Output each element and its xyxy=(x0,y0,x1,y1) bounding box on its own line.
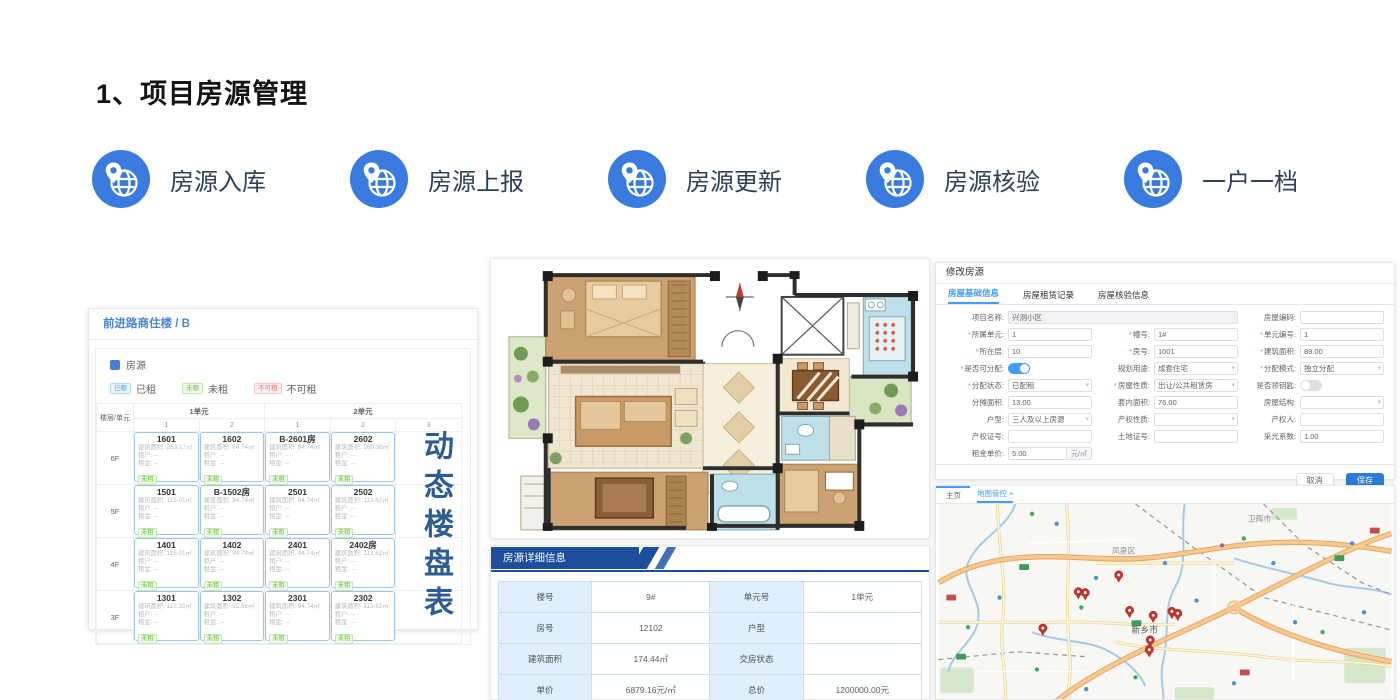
chevron-down-icon: ▾ xyxy=(1231,416,1235,423)
room-rent: 租金: -- xyxy=(138,619,195,627)
room-number: 1302 xyxy=(204,593,261,603)
detail-label: 房号 xyxy=(499,613,592,644)
field-label: 采光系数: xyxy=(1238,431,1300,442)
form-field: 租金单价:5.00元/㎡ xyxy=(946,447,1092,460)
required-asterisk: * xyxy=(1129,330,1132,339)
room-cell: 2602建筑面积: 260.36㎡租户: --租金: --未租 xyxy=(330,432,396,485)
form-field: 房屋结构:▾ xyxy=(1238,396,1384,409)
text-input[interactable] xyxy=(1300,413,1384,426)
room-status-badge: 未租 xyxy=(269,581,288,591)
room-cell: 1602建筑面积: 94.74㎡租户: --租金: --未租 xyxy=(199,432,265,485)
text-input[interactable] xyxy=(1154,430,1238,443)
room-rent: 租金: -- xyxy=(269,513,326,521)
chevron-down-icon: ▾ xyxy=(1085,382,1089,389)
room-card[interactable]: 1301建筑面积: 113.35㎡租户: --租金: --未租 xyxy=(134,591,199,641)
form-field: 产权人: xyxy=(1238,413,1384,426)
room-number: 2302 xyxy=(335,593,392,603)
field-label: 租金单价: xyxy=(946,448,1008,459)
room-area: 建筑面积: 113.62㎡ xyxy=(335,550,392,558)
field-label: 规划用途: xyxy=(1092,363,1154,374)
room-area: 建筑面积: 94.74㎡ xyxy=(204,550,261,558)
form-field: 套内面积:76.00 xyxy=(1092,396,1238,409)
form-field: 产权性质:▾ xyxy=(1092,413,1238,426)
room-number: 2301 xyxy=(269,593,326,603)
unit-group-header: 1单元 xyxy=(134,404,265,419)
feature-row: 房源入库房源上报房源更新房源核验一户一档 xyxy=(92,150,1382,208)
room-status-badge: 未租 xyxy=(138,528,157,538)
select-input[interactable]: ▾ xyxy=(1300,396,1384,409)
floor-label: 6F xyxy=(97,432,134,485)
form-tab-2[interactable]: 房屋租赁记录 xyxy=(1023,289,1074,304)
room-cell: 1301建筑面积: 113.35㎡租户: --租金: --未租 xyxy=(134,591,200,644)
form-field: *建筑面积:89.00 xyxy=(1238,345,1384,358)
field-label: *房号: xyxy=(1092,346,1154,357)
room-number: 2502 xyxy=(335,487,392,497)
legend-status-rented: 已租已租 xyxy=(110,381,156,396)
text-input[interactable]: 1# xyxy=(1154,328,1238,341)
room-card[interactable]: 2501建筑面积: 94.74㎡租户: --租金: --未租 xyxy=(265,485,330,535)
field-label: *所属单元: xyxy=(946,329,1008,340)
room-card[interactable]: 2401建筑面积: 94.74㎡租户: --租金: --未租 xyxy=(265,538,330,588)
room-area: 建筑面积: 94.74㎡ xyxy=(269,603,326,611)
edit-form: 项目名称:兴测小区房屋编码:*所属单元:1*幢号:1#*单元编号:1*所在层:1… xyxy=(936,305,1394,460)
room-number: B-2601房 xyxy=(269,434,326,444)
room-status-badge: 未租 xyxy=(204,528,223,538)
room-number: 2402房 xyxy=(335,540,392,550)
text-input[interactable]: 5.00 xyxy=(1008,447,1067,460)
toggle-knob xyxy=(1020,364,1029,373)
form-field: *所在层:10 xyxy=(946,345,1092,358)
required-asterisk: * xyxy=(960,364,963,373)
select-input[interactable]: 独立分配▾ xyxy=(1300,362,1384,375)
chevron-down-icon: ▾ xyxy=(1085,416,1089,423)
map-tab-1[interactable]: 主页 xyxy=(946,490,961,503)
detail-label: 交房状态 xyxy=(710,644,803,675)
detail-value: 174.44㎡ xyxy=(592,644,710,675)
feature-item-5: 一户一档 xyxy=(1124,150,1382,208)
legend-status-unavailable: 不可租不可租 xyxy=(254,381,317,396)
form-field: 房屋编码: xyxy=(1238,311,1384,324)
room-area: 建筑面积: 113.35㎡ xyxy=(138,603,195,611)
unit-group-header: 2单元 xyxy=(265,404,462,419)
room-card[interactable]: 2301建筑面积: 94.74㎡租户: --租金: --未租 xyxy=(265,591,330,641)
text-input[interactable]: 兴测小区 xyxy=(1008,311,1238,324)
form-field: *是否可分配: xyxy=(946,362,1092,375)
room-status-badge: 未租 xyxy=(204,475,223,485)
room-tenant: 租户: -- xyxy=(269,505,326,513)
room-card[interactable]: 2302建筑面积: 113.62㎡租户: --租金: --未租 xyxy=(331,591,396,641)
room-number: B-1502房 xyxy=(204,487,261,497)
room-tenant: 租户: -- xyxy=(204,611,261,619)
form-tab-3[interactable]: 房屋核验信息 xyxy=(1098,289,1149,304)
room-number: 2602 xyxy=(335,434,392,444)
required-asterisk: * xyxy=(1114,381,1117,390)
form-row-7: 户型:三人及以上房源▾产权性质:▾产权人: xyxy=(946,413,1384,426)
select-input[interactable]: 已配租▾ xyxy=(1008,379,1092,392)
globe-pin-icon xyxy=(350,150,408,208)
detail-row: 楼号9#单元号1单元 xyxy=(499,582,922,613)
form-field: 产权证号: xyxy=(946,430,1092,443)
legend-badge-vacant: 未租 xyxy=(182,383,203,394)
toggle-switch[interactable] xyxy=(1008,363,1030,374)
room-tenant: 租户: -- xyxy=(138,505,195,513)
feature-item-4: 房源核验 xyxy=(866,150,1124,208)
room-rent: 租金: -- xyxy=(269,619,326,627)
globe-pin-icon xyxy=(866,150,924,208)
text-input[interactable]: 1 xyxy=(1300,328,1384,341)
room-area: 建筑面积: 113.62㎡ xyxy=(335,497,392,505)
room-number: 1501 xyxy=(138,487,195,497)
detail-value: 9# xyxy=(592,582,710,613)
detail-value xyxy=(803,644,921,675)
field-label: 产权证号: xyxy=(946,431,1008,442)
feature-item-3: 房源更新 xyxy=(608,150,866,208)
detail-value: 1200000.00元 xyxy=(803,675,921,700)
building-table-row: 4F1401建筑面积: 115.01㎡租户: --租金: --未租1402建筑面… xyxy=(97,538,462,591)
form-field: *所属单元:1 xyxy=(946,328,1092,341)
room-tenant: 租户: -- xyxy=(335,452,392,460)
field-label: 房屋编码: xyxy=(1238,312,1300,323)
legend-label-rented: 已租 xyxy=(136,381,156,396)
form-field: 采光系数:1.00 xyxy=(1238,430,1384,443)
room-number: 1401 xyxy=(138,540,195,550)
unit-column-header: 1 xyxy=(134,419,200,432)
room-rent: 租金: -- xyxy=(335,619,392,627)
toggle-knob xyxy=(1301,381,1310,390)
map-tabs: 主页地图管控 × xyxy=(936,486,1394,504)
form-row-1: 项目名称:兴测小区房屋编码: xyxy=(946,311,1384,324)
room-rent: 租金: -- xyxy=(204,566,261,574)
field-label: *房屋性质: xyxy=(1092,380,1154,391)
room-cell: 1302建筑面积: 92.56㎡租户: --租金: --未租 xyxy=(199,591,265,644)
room-area: 建筑面积: 113.62㎡ xyxy=(335,603,392,611)
room-card[interactable]: 2502建筑面积: 113.62㎡租户: --租金: --未租 xyxy=(331,485,396,535)
room-cell: 2301建筑面积: 94.74㎡租户: --租金: --未租 xyxy=(265,591,331,644)
feature-label: 房源入库 xyxy=(170,162,266,197)
room-number: 1301 xyxy=(138,593,195,603)
room-tenant: 租户: -- xyxy=(269,558,326,566)
room-card[interactable]: 1402建筑面积: 94.74㎡租户: --租金: --未租 xyxy=(200,538,265,588)
room-tenant: 租户: -- xyxy=(138,452,195,460)
house-detail-panel: 房源详细信息 楼号9#单元号1单元房号12102户型建筑面积174.44㎡交房状… xyxy=(490,545,930,700)
chevron-down-icon: ▾ xyxy=(1377,365,1381,372)
room-rent: 租金: -- xyxy=(138,513,195,521)
room-cell: 2502建筑面积: 113.62㎡租户: --租金: --未租 xyxy=(330,485,396,538)
room-cell: 2402房建筑面积: 113.62㎡租户: --租金: --未租 xyxy=(330,538,396,591)
select-input[interactable]: 出让/公共租赁房▾ xyxy=(1154,379,1238,392)
text-input[interactable]: 1 xyxy=(1008,328,1092,341)
chevron-down-icon: ▾ xyxy=(1231,382,1235,389)
room-cell: 1402建筑面积: 94.74㎡租户: --租金: --未租 xyxy=(199,538,265,591)
form-row-4: *是否可分配:规划用途:成套住宅▾*分配模式:独立分配▾ xyxy=(946,362,1384,375)
legend-label-unavailable: 不可租 xyxy=(287,381,317,396)
room-tenant: 租户: -- xyxy=(335,505,392,513)
map-tab-2[interactable]: 地图管控 × xyxy=(977,488,1013,503)
room-rent: 租金: -- xyxy=(335,513,392,521)
room-number: 1402 xyxy=(204,540,261,550)
unit-column-header: 2 xyxy=(199,419,265,432)
map-panel: 主页地图管控 × xyxy=(935,485,1395,700)
room-status-badge: 未租 xyxy=(269,475,288,485)
field-label: *是否可分配: xyxy=(946,363,1008,374)
room-status-badge: 未租 xyxy=(138,581,157,591)
floor-plan-card xyxy=(490,258,930,539)
field-label: *分配模式: xyxy=(1238,363,1300,374)
room-status-badge: 未租 xyxy=(335,634,354,644)
room-area: 建筑面积: 115.01㎡ xyxy=(138,550,195,558)
unit-column-header: 2 xyxy=(330,419,396,432)
map-active-bar xyxy=(936,486,970,488)
form-field: 土地证号: xyxy=(1092,430,1238,443)
form-field: *单元编号:1 xyxy=(1238,328,1384,341)
select-input[interactable]: ▾ xyxy=(1154,413,1238,426)
field-label: *幢号: xyxy=(1092,329,1154,340)
room-cell: 1401建筑面积: 115.01㎡租户: --租金: --未租 xyxy=(134,538,200,591)
field-label: 产权人: xyxy=(1238,414,1300,425)
feature-label: 房源更新 xyxy=(686,162,782,197)
room-tenant: 租户: -- xyxy=(335,558,392,566)
room-status-badge: 未租 xyxy=(204,634,223,644)
form-field: 分摊面积:13.00 xyxy=(946,396,1092,409)
detail-label: 户型 xyxy=(710,613,803,644)
input-group: 5.00元/㎡ xyxy=(1008,447,1092,460)
text-input[interactable]: 10 xyxy=(1008,345,1092,358)
text-input[interactable]: 1001 xyxy=(1154,345,1238,358)
room-card[interactable]: 1501建筑面积: 115.01㎡租户: --租金: --未租 xyxy=(134,485,199,535)
legend-status-vacant: 未租未租 xyxy=(182,381,228,396)
building-title: 前进路商住楼 / B xyxy=(89,309,477,340)
legend-source: 房源 xyxy=(110,357,470,372)
room-area: 建筑面积: 115.01㎡ xyxy=(138,497,195,505)
input-suffix: 元/㎡ xyxy=(1067,447,1092,460)
feature-item-2: 房源上报 xyxy=(350,150,608,208)
field-label: 土地证号: xyxy=(1092,431,1154,442)
room-tenant: 租户: -- xyxy=(138,558,195,566)
floor-label: 5F xyxy=(97,485,134,538)
form-field: *分配状态:已配租▾ xyxy=(946,379,1092,392)
room-area: 建筑面积: 92.56㎡ xyxy=(204,603,261,611)
room-card[interactable]: B-1502房建筑面积: 94.74㎡租户: --租金: --未租 xyxy=(200,485,265,535)
room-card[interactable]: 1602建筑面积: 94.74㎡租户: --租金: --未租 xyxy=(200,432,265,482)
room-status-badge: 未租 xyxy=(335,475,354,485)
required-asterisk: * xyxy=(1129,347,1132,356)
required-asterisk: * xyxy=(1260,330,1263,339)
room-status-badge: 未租 xyxy=(269,528,288,538)
room-rent: 租金: -- xyxy=(335,460,392,468)
room-tenant: 租户: -- xyxy=(204,558,261,566)
room-card[interactable]: 2602建筑面积: 260.36㎡租户: --租金: --未租 xyxy=(331,432,396,482)
required-asterisk: * xyxy=(1260,364,1263,373)
slide-canvas: 1、项目房源管理 房源入库房源上报房源更新房源核验一户一档 前进路商住楼 / B… xyxy=(0,0,1400,700)
text-input[interactable]: 76.00 xyxy=(1154,396,1238,409)
globe-pin-icon xyxy=(608,150,666,208)
room-card[interactable]: 1401建筑面积: 115.01㎡租户: --租金: --未租 xyxy=(134,538,199,588)
page-title: 1、项目房源管理 xyxy=(96,72,308,111)
detail-header-title: 房源详细信息 xyxy=(491,547,639,569)
building-table-header-row: 楼层/单元1单元2单元 xyxy=(97,404,462,419)
text-input[interactable]: 13.00 xyxy=(1008,396,1092,409)
room-tenant: 租户: -- xyxy=(138,611,195,619)
legend-statuses: 已租已租未租未租不可租不可租 xyxy=(110,381,470,396)
map-city-label: 新乡市 xyxy=(1132,624,1159,635)
globe-pin-icon xyxy=(92,150,150,208)
room-cell: 2302建筑面积: 113.62㎡租户: --租金: --未租 xyxy=(330,591,396,644)
form-row-9: 租金单价:5.00元/㎡ xyxy=(946,447,1384,460)
room-rent: 租金: -- xyxy=(269,460,326,468)
room-area: 建筑面积: 260.36㎡ xyxy=(335,444,392,452)
detail-row: 建筑面积174.44㎡交房状态 xyxy=(499,644,922,675)
room-tenant: 租户: -- xyxy=(335,611,392,619)
detail-row: 单价6879.16元/㎡总价1200000.00元 xyxy=(499,675,922,700)
form-field: *房屋性质:出让/公共租赁房▾ xyxy=(1092,379,1238,392)
legend-badge-unavailable: 不可租 xyxy=(254,383,282,394)
room-status-badge: 未租 xyxy=(138,634,157,644)
room-card[interactable]: 2402房建筑面积: 113.62㎡租户: --租金: --未租 xyxy=(331,538,396,588)
field-label: 分摊面积: xyxy=(946,397,1008,408)
field-label: 项目名称: xyxy=(946,312,1008,323)
detail-label: 单价 xyxy=(499,675,592,700)
room-cell: 1501建筑面积: 115.01㎡租户: --租金: --未租 xyxy=(134,485,200,538)
city-map[interactable]: 凤泉区卫辉市新乡市 xyxy=(936,504,1394,700)
map-city-label: 凤泉区 xyxy=(1112,545,1136,555)
room-tenant: 租户: -- xyxy=(269,452,326,460)
feature-label: 房源上报 xyxy=(428,162,524,197)
form-field: *房号:1001 xyxy=(1092,345,1238,358)
text-input[interactable] xyxy=(1008,430,1092,443)
dialog-tabs: 房屋基础信息房屋租赁记录房屋核验信息 xyxy=(936,284,1394,305)
field-label: *建筑面积: xyxy=(1238,346,1300,357)
room-number: 2401 xyxy=(269,540,326,550)
toggle-switch[interactable] xyxy=(1300,380,1322,391)
room-tenant: 租户: -- xyxy=(269,611,326,619)
field-label: *所在层: xyxy=(946,346,1008,357)
room-rent: 租金: -- xyxy=(204,460,261,468)
room-status-badge: 未租 xyxy=(204,581,223,591)
text-input[interactable]: 1.00 xyxy=(1300,430,1384,443)
dialog-title: 修改房源 xyxy=(936,263,1394,284)
feature-label: 房源核验 xyxy=(944,162,1040,197)
vertical-caption: 动态楼盘表 xyxy=(413,430,457,625)
text-input[interactable]: 89.00 xyxy=(1300,345,1384,358)
floor-label: 3F xyxy=(97,591,134,644)
legend-source-label: 房源 xyxy=(126,357,146,372)
select-input[interactable]: 成套住宅▾ xyxy=(1154,362,1238,375)
building-table-subheader-row: 12123 xyxy=(97,419,462,432)
room-tenant: 租户: -- xyxy=(204,452,261,460)
form-row-2: *所属单元:1*幢号:1#*单元编号:1 xyxy=(946,328,1384,341)
globe-pin-icon xyxy=(1124,150,1182,208)
feature-item-1: 房源入库 xyxy=(92,150,350,208)
room-area: 建筑面积: 94.74㎡ xyxy=(269,444,326,452)
field-label: 房屋结构: xyxy=(1238,397,1300,408)
room-rent: 租金: -- xyxy=(269,566,326,574)
floor-label: 4F xyxy=(97,538,134,591)
room-cell: B-2601房建筑面积: 94.74㎡租户: --租金: --未租 xyxy=(265,432,331,485)
room-cell: B-1502房建筑面积: 94.74㎡租户: --租金: --未租 xyxy=(199,485,265,538)
field-label: *单元编号: xyxy=(1238,329,1300,340)
legend-badge-rented: 已租 xyxy=(110,383,131,394)
required-asterisk: * xyxy=(1260,347,1263,356)
room-status-badge: 未租 xyxy=(269,634,288,644)
floor-plan xyxy=(491,259,929,538)
select-input[interactable]: 三人及以上房源▾ xyxy=(1008,413,1092,426)
room-number: 1602 xyxy=(204,434,261,444)
room-card[interactable]: 1601建筑面积: 263.17㎡租户: --租金: --未租 xyxy=(134,432,199,482)
detail-label: 建筑面积 xyxy=(499,644,592,675)
required-asterisk: * xyxy=(968,381,971,390)
room-area: 建筑面积: 94.74㎡ xyxy=(204,497,261,505)
room-number: 1601 xyxy=(138,434,195,444)
detail-row: 房号12102户型 xyxy=(499,613,922,644)
field-label: 套内面积: xyxy=(1092,397,1154,408)
detail-label: 总价 xyxy=(710,675,803,700)
room-number: 2501 xyxy=(269,487,326,497)
building-table-row: 5F1501建筑面积: 115.01㎡租户: --租金: --未租B-1502房… xyxy=(97,485,462,538)
legend-label-vacant: 未租 xyxy=(208,381,228,396)
detail-header: 房源详细信息 xyxy=(491,546,929,572)
building-table-row: 3F1301建筑面积: 113.35㎡租户: --租金: --未租1302建筑面… xyxy=(97,591,462,644)
floor-unit-corner-cell: 楼层/单元 xyxy=(97,404,134,432)
room-tenant: 租户: -- xyxy=(204,505,261,513)
detail-value: 12102 xyxy=(592,613,710,644)
building-table-row: 6F1601建筑面积: 263.17㎡租户: --租金: --未租1602建筑面… xyxy=(97,432,462,485)
room-rent: 租金: -- xyxy=(335,566,392,574)
form-field: 户型:三人及以上房源▾ xyxy=(946,413,1092,426)
room-status-badge: 未租 xyxy=(335,528,354,538)
room-area: 建筑面积: 94.74㎡ xyxy=(204,444,261,452)
form-field: *分配模式:独立分配▾ xyxy=(1238,362,1384,375)
building-table: 楼层/单元1单元2单元121236F1601建筑面积: 263.17㎡租户: -… xyxy=(96,403,462,644)
room-rent: 租金: -- xyxy=(204,513,261,521)
form-row-8: 产权证号:土地证号:采光系数:1.00 xyxy=(946,430,1384,443)
form-field: *幢号:1# xyxy=(1092,328,1238,341)
room-area: 建筑面积: 94.74㎡ xyxy=(269,497,326,505)
form-field: 规划用途:成套住宅▾ xyxy=(1092,362,1238,375)
form-field: 是否领钥匙: xyxy=(1238,379,1384,392)
room-status-badge: 未租 xyxy=(335,581,354,591)
field-label: 产权性质: xyxy=(1092,414,1154,425)
detail-value xyxy=(803,613,921,644)
detail-label: 单元号 xyxy=(710,582,803,613)
room-rent: 租金: -- xyxy=(138,566,195,574)
detail-value: 1单元 xyxy=(803,582,921,613)
room-cell: 2401建筑面积: 94.74㎡租户: --租金: --未租 xyxy=(265,538,331,591)
form-row-6: 分摊面积:13.00套内面积:76.00房屋结构:▾ xyxy=(946,396,1384,409)
room-rent: 租金: -- xyxy=(204,619,261,627)
room-status-badge: 未租 xyxy=(138,475,157,485)
detail-value: 6879.16元/㎡ xyxy=(592,675,710,700)
detail-label: 楼号 xyxy=(499,582,592,613)
room-card[interactable]: 1302建筑面积: 92.56㎡租户: --租金: --未租 xyxy=(200,591,265,641)
form-row-5: *分配状态:已配租▾*房屋性质:出让/公共租赁房▾是否领钥匙: xyxy=(946,379,1384,392)
edit-house-dialog: 修改房源 房屋基础信息房屋租赁记录房屋核验信息 项目名称:兴测小区房屋编码:*所… xyxy=(935,262,1395,480)
form-tab-1[interactable]: 房屋基础信息 xyxy=(948,287,999,304)
legend-square-icon xyxy=(110,360,120,370)
field-label: *分配状态: xyxy=(946,380,1008,391)
field-label: 户型: xyxy=(946,414,1008,425)
required-asterisk: * xyxy=(975,347,978,356)
room-card[interactable]: B-2601房建筑面积: 94.74㎡租户: --租金: --未租 xyxy=(265,432,330,482)
form-field: 项目名称:兴测小区 xyxy=(946,311,1238,324)
required-asterisk: * xyxy=(968,330,971,339)
chevron-down-icon: ▾ xyxy=(1377,399,1381,406)
room-rent: 租金: -- xyxy=(138,460,195,468)
map-city-label: 卫辉市 xyxy=(1248,514,1272,524)
room-area: 建筑面积: 94.74㎡ xyxy=(269,550,326,558)
text-input[interactable] xyxy=(1300,311,1384,324)
room-cell: 2501建筑面积: 94.74㎡租户: --租金: --未租 xyxy=(265,485,331,538)
detail-header-stripe xyxy=(655,547,677,569)
